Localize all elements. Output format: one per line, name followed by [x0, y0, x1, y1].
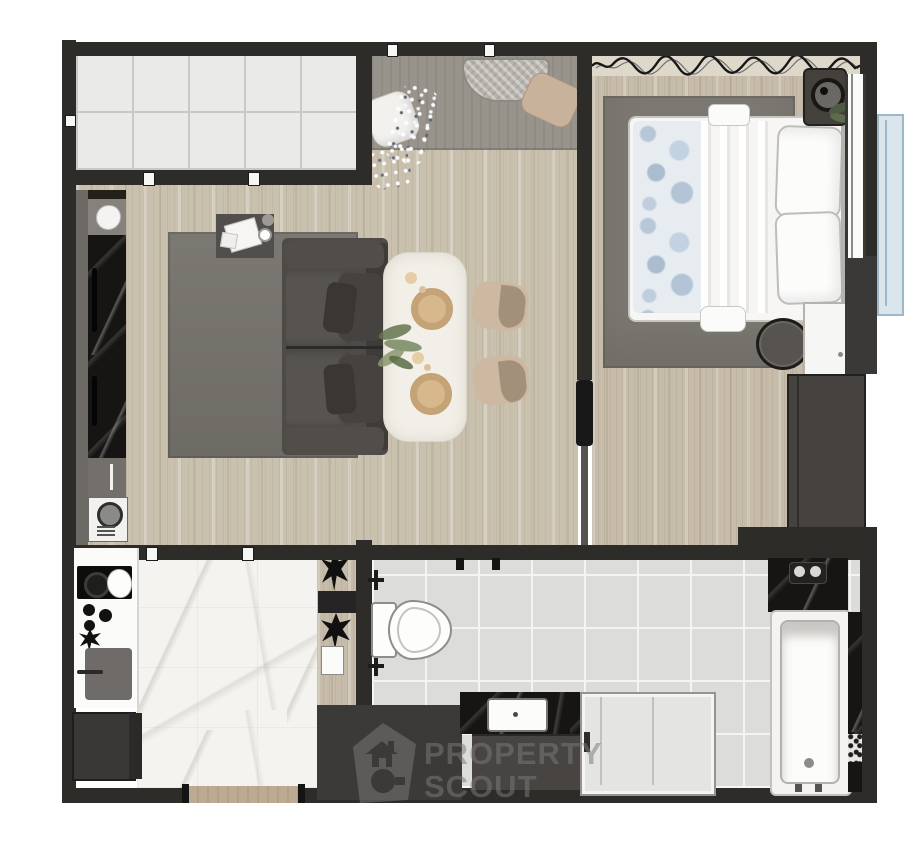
wall-top [66, 42, 877, 56]
plumbing-valve-icon [368, 578, 384, 582]
chopping-board [85, 648, 132, 700]
counter-backing [76, 190, 88, 545]
balcony-tile-floor [76, 56, 356, 170]
bathroom-door-jamb [492, 558, 500, 570]
saucer-icon [424, 364, 431, 371]
sofa-lumbar-pillow [323, 363, 357, 415]
washing-machine-vent-icon [97, 526, 115, 536]
shower-handle-icon [584, 732, 590, 752]
cabinet-handle-icon [110, 464, 113, 490]
hook-divider [318, 591, 358, 613]
sink-drain-icon [513, 712, 518, 717]
saucer-icon [412, 352, 424, 364]
speaker-dot-icon [820, 87, 828, 95]
small-note-icon [220, 232, 238, 249]
switch-panel [321, 646, 344, 675]
pot-icon [107, 569, 132, 598]
window [845, 74, 866, 258]
sofa-lumbar-pillow [322, 281, 358, 334]
wall-right-lower [860, 540, 877, 803]
plumbing-valve-icon [368, 664, 384, 668]
counter-handle [92, 268, 97, 332]
cup-icon [258, 228, 272, 242]
sofa-seam [286, 346, 384, 349]
counter-shelf-top [88, 190, 126, 199]
entrance-jamb [182, 784, 189, 803]
wall-bedroom-bottom [738, 527, 877, 545]
sequin-runner-tail [369, 145, 413, 191]
kitchen-base-cabinet-side [129, 713, 142, 779]
tub-faucet-icon [815, 784, 822, 792]
kitchen-base-cabinet [72, 712, 136, 781]
bathroom-corner-block [317, 705, 462, 800]
bathroom-door-jamb [456, 558, 464, 570]
shower-glass-line [652, 697, 654, 785]
wall-bedroom-left [577, 56, 592, 380]
bedroom-door-leaf [576, 380, 593, 446]
wall-bathroom-left [356, 540, 372, 710]
wall-right-block [845, 256, 877, 374]
shower-glass-line [600, 697, 602, 785]
wall-balcony-right [356, 42, 372, 185]
nightstand-knob-icon [838, 352, 843, 357]
pouf [756, 318, 810, 370]
wall-tick [387, 44, 398, 57]
mosaic-patch [848, 734, 862, 762]
window-mullion [851, 74, 853, 258]
duvet-overhang-bottom [700, 306, 746, 332]
floor-plan: PROPERTY SCOUT [0, 0, 923, 854]
board-handle-icon [77, 670, 103, 674]
bed-duvet-folds [701, 121, 777, 313]
saucer-icon [419, 286, 426, 293]
knob-icon [99, 609, 112, 622]
socket-outlet-icon [810, 566, 821, 577]
entrance-jamb [298, 784, 305, 803]
balcony-door-jamb [143, 172, 155, 186]
rattan-charger-plate [411, 288, 453, 330]
bed-pillow [774, 211, 843, 305]
tub-faucet-icon [795, 784, 802, 792]
rattan-charger-plate [410, 373, 452, 415]
wall-bedroom-left-opening [581, 446, 588, 556]
sofa-armrest-bottom [284, 427, 384, 455]
washing-machine-door-icon [97, 502, 123, 528]
entrance-threshold [187, 786, 300, 803]
burner-icon [84, 572, 110, 598]
ac-ledge-line [885, 120, 887, 306]
vanity-cabinet [472, 734, 580, 790]
sofa-armrest-top [284, 240, 384, 268]
kitchen-door-jamb [242, 547, 254, 561]
tub-side-marble [848, 612, 862, 792]
kitchen-door-jamb [146, 547, 158, 561]
saucer-icon [405, 272, 417, 284]
wall-mid-horizontal [62, 545, 877, 560]
tub-drain-icon [804, 758, 814, 768]
nightstand [803, 302, 851, 376]
wall-tick [484, 44, 495, 57]
knob-icon [84, 620, 95, 631]
bed-pillow [774, 125, 843, 219]
wardrobe-seam [797, 376, 799, 540]
kitchen-marble-floor [137, 560, 317, 788]
counter-gray-cabinet [88, 458, 126, 497]
duvet-overhang-top [708, 104, 750, 126]
bed-blue-blanket [633, 121, 703, 313]
wall-balcony-bottom [62, 170, 372, 185]
ac-ledge [877, 114, 904, 316]
knob-icon [83, 604, 95, 616]
counter-handle [92, 376, 97, 426]
balcony-door-jamb [248, 172, 260, 186]
socket-outlet-icon [794, 566, 805, 577]
plate-icon [262, 214, 274, 226]
wall-tick [65, 115, 76, 127]
